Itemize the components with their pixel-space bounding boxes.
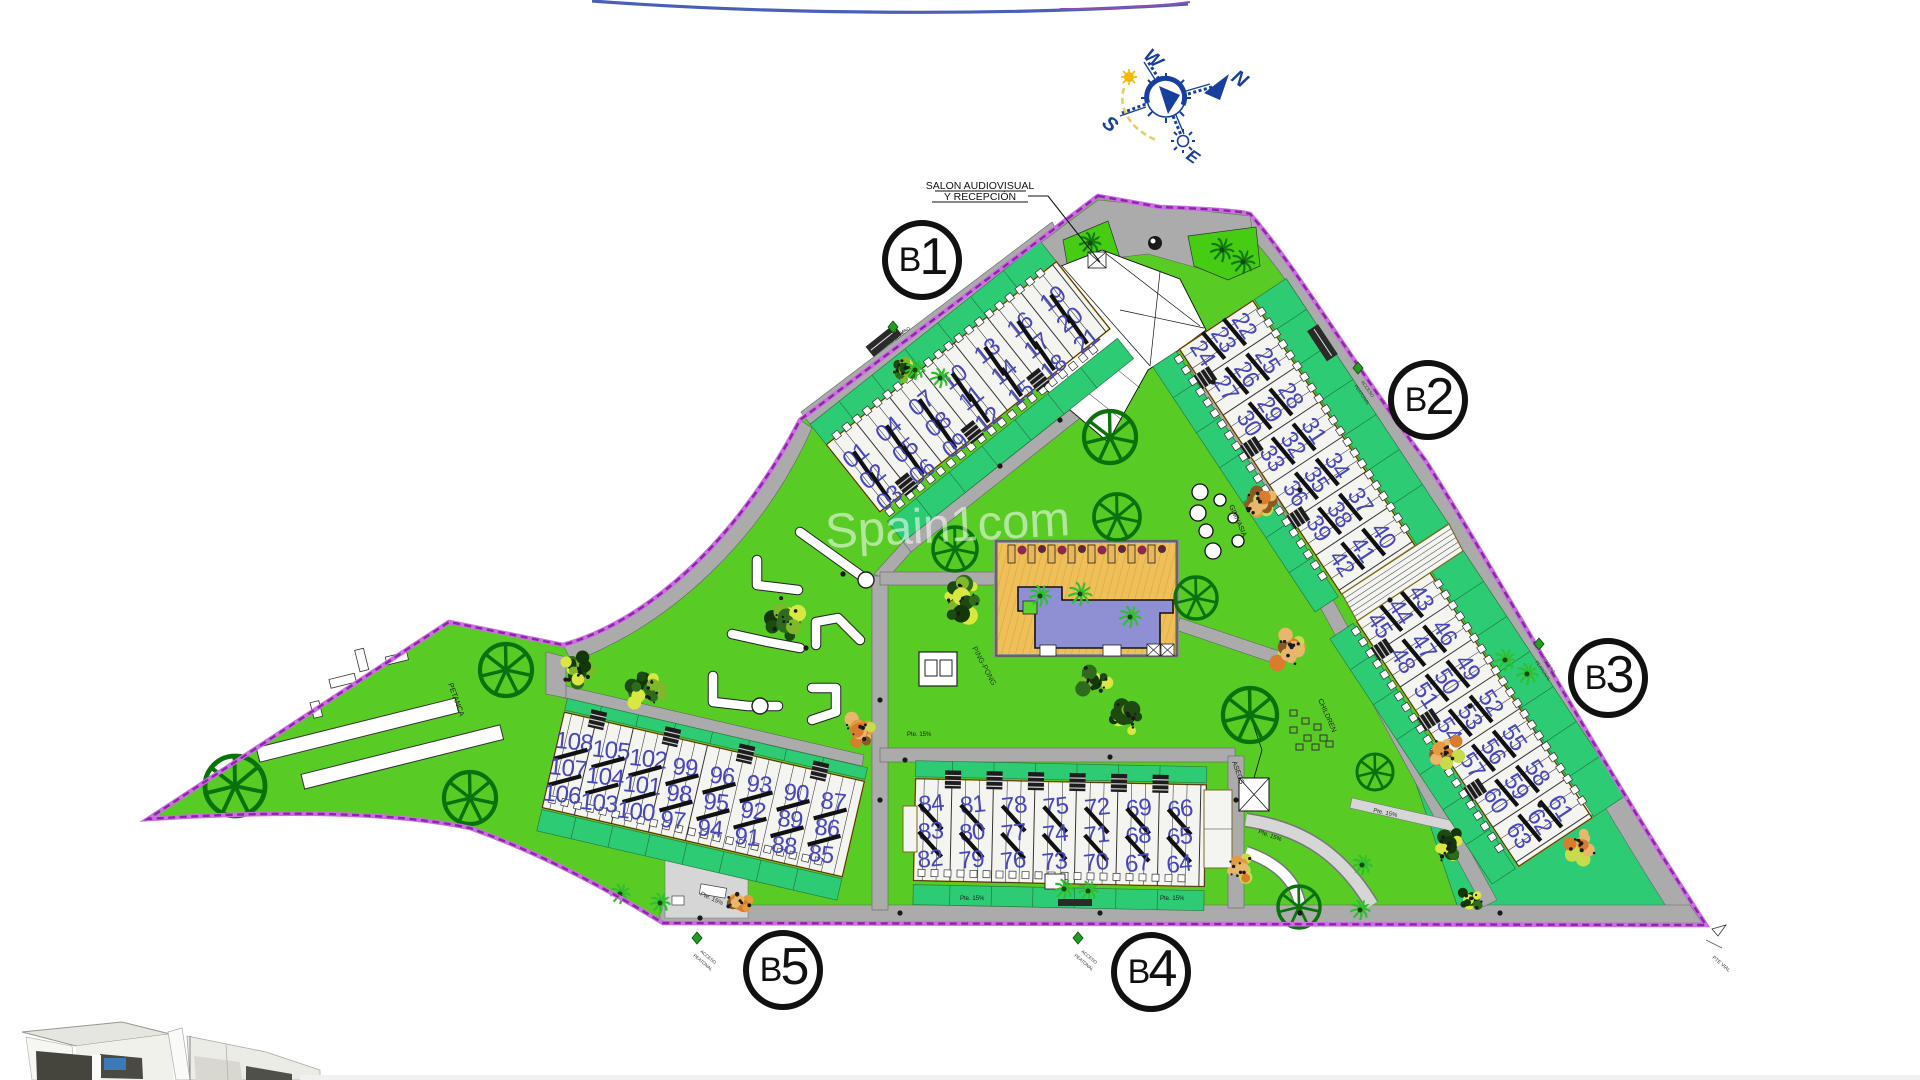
svg-text:1: 1 <box>920 228 949 286</box>
svg-text:97: 97 <box>659 806 687 836</box>
svg-text:94: 94 <box>696 814 724 844</box>
svg-text:B: B <box>1585 659 1608 697</box>
svg-text:91: 91 <box>733 823 761 853</box>
svg-text:82: 82 <box>916 844 944 874</box>
svg-text:103: 103 <box>579 788 620 819</box>
svg-text:B: B <box>899 241 922 279</box>
svg-text:B: B <box>1405 381 1428 419</box>
svg-text:B: B <box>760 951 783 989</box>
svg-text:100: 100 <box>616 796 657 827</box>
svg-text:B: B <box>1128 953 1151 991</box>
svg-text:76: 76 <box>999 846 1027 876</box>
svg-text:2: 2 <box>1426 368 1455 426</box>
svg-text:67: 67 <box>1124 849 1152 879</box>
svg-text:Pte. 15%: Pte. 15% <box>960 896 985 902</box>
svg-text:88: 88 <box>770 831 798 861</box>
svg-text:73: 73 <box>1041 847 1069 877</box>
svg-text:5: 5 <box>781 938 810 996</box>
svg-text:4: 4 <box>1149 940 1178 998</box>
svg-text:Pte. 15%: Pte. 15% <box>1160 896 1185 902</box>
svg-text:3: 3 <box>1606 646 1635 704</box>
svg-text:Pte. 15%: Pte. 15% <box>907 732 932 738</box>
svg-text:106: 106 <box>542 779 583 810</box>
svg-text:85: 85 <box>807 840 835 870</box>
svg-text:70: 70 <box>1082 848 1110 878</box>
svg-text:64: 64 <box>1165 850 1193 880</box>
svg-text:79: 79 <box>958 845 986 875</box>
svg-text:Y RECEPCIÓN: Y RECEPCIÓN <box>944 190 1016 203</box>
